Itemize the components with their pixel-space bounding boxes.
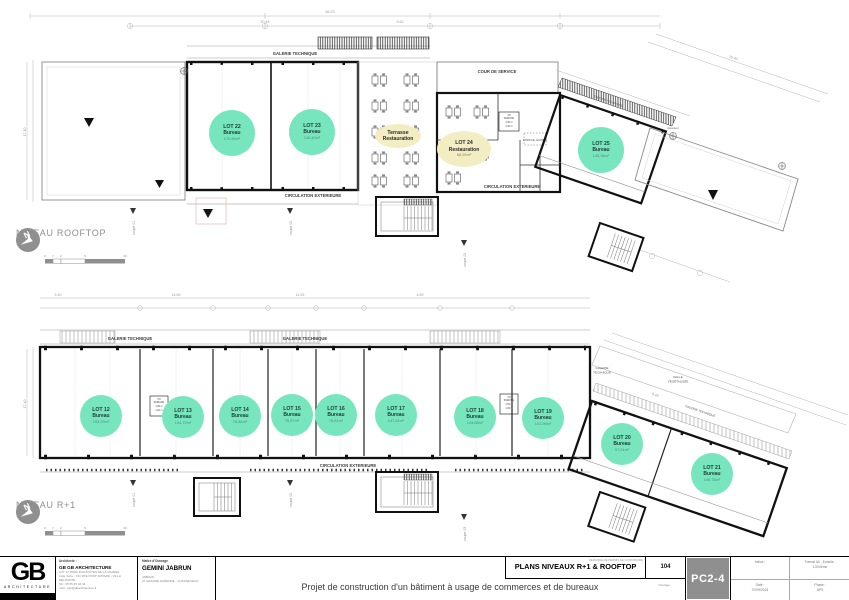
lot-badge-20: LOT 20 Bureau 97,01m² [601, 423, 643, 465]
rooftop-section-markers: coupe 01 coupe 02 coupe 03 [130, 208, 467, 267]
galerie-technique-label: GALERIE TECHNIQUE [283, 336, 328, 341]
scale-tick: 1 [52, 526, 54, 530]
coupe-label: coupe 01 [132, 493, 136, 507]
vh-text: PARKING [504, 117, 515, 120]
lot-area: 68,25m² [457, 153, 471, 158]
drawing-title-cell: DEMANDE DE PERMIS DE CONSTRUIRE PLANS NI… [505, 557, 645, 579]
cour-de-service-label: COUR DE SERVICE [478, 69, 517, 74]
dim-text: 5.40 [55, 293, 62, 297]
architect-label: Architecte : [59, 559, 134, 563]
r1-plan: 5.40 14.89 11.93 4.89 17.40 9.43 GALERIE… [23, 293, 848, 542]
drawing-sheet: 66.23 20.44 9.62 17.10 15.40 GALERIE TEC… [0, 0, 849, 600]
date-cell: Date : 07/09/2023 [731, 579, 789, 600]
meta-cell: Indice : Format A0 - Echelle : 1/200ème … [730, 557, 849, 600]
dalle-label-l1: DALLE [673, 375, 683, 379]
phase-cell: Phase : APS [789, 579, 849, 600]
scale-tick: 2 [60, 254, 62, 258]
lot-area: 170,90m² [224, 137, 240, 141]
rooftop-stair-tower-1 [376, 197, 438, 236]
coupe-label: coupe 02 [289, 493, 293, 507]
circulation-label: CIRCULATION EXTERIEURE [285, 193, 342, 198]
lot-badge-16: LOT 16 Bureau 76,81m² [315, 394, 357, 436]
project-description: Projet de construction d'un bâtiment à u… [215, 582, 685, 592]
vh-text: PARKING [504, 399, 515, 402]
logo-cell: GB ARCHITECTURE [0, 557, 55, 600]
lot-area: 144,72m² [175, 421, 191, 425]
r1-stair-tower-a [194, 478, 240, 516]
lot-area: 151,96m² [535, 422, 551, 426]
pc-code-box: PC2-4 [687, 558, 729, 599]
format-value: 1/200ème [790, 565, 849, 570]
architect-cell: Architecte : GB GB ARCHITECTURE LOT 27 P… [55, 557, 137, 600]
galerie2-label-l2: TECHNIQUE [593, 371, 611, 375]
terrasse-restauration-badge: Terrasse Restauration [375, 124, 421, 148]
lot-area: 97,01m² [615, 448, 629, 452]
lot-area: 145,38m² [593, 154, 609, 158]
lot-badge-22: LOT 22 Bureau 170,90m² [209, 110, 255, 156]
scale-tick: 10 [123, 526, 127, 530]
lot-area: 76,84m² [233, 420, 247, 424]
client-cell: Maître d'Ouvrage GEMINI JABRUN JABRUN 27… [137, 557, 215, 600]
vh-parking-rooftop: VH PARKING 1,50 m 1,00 m [504, 114, 515, 128]
scale-tick: 5 [84, 254, 86, 258]
cour-de-service-area [437, 62, 558, 93]
r1-stair-tower-c [588, 492, 645, 542]
architect-name: GB GB ARCHITECTURE [59, 565, 134, 570]
circulation-label: CIRCULATION EXTERIEURE [484, 184, 541, 189]
indice-label: Indice : [755, 560, 766, 564]
sheet-number-cell: 104 [645, 557, 685, 579]
project-cell [215, 557, 505, 600]
lot-badge-13: LOT 13 Bureau 144,72m² [162, 396, 204, 438]
format-cell: Format A0 - Echelle : 1/200ème [789, 557, 849, 579]
rooftop-level-label: N NIVEAU ROOFTOP [16, 228, 106, 238]
terrasse-label-l2: Restauration [383, 136, 414, 142]
lot-badge-17: LOT 17 Bureau 147,41m² [375, 394, 417, 436]
coupe-label: coupe 03 [463, 253, 467, 267]
rooftop-scale-bar: 0 1 2 5 10 [44, 254, 127, 264]
lot-badge-14: LOT 14 Bureau 76,84m² [219, 395, 261, 437]
r1-section-markers: coupe 01 coupe 02 coupe 03 [130, 480, 467, 541]
dim-text: 20.44 [261, 20, 270, 24]
scale-tick: 0 [44, 526, 46, 530]
vh-text: PARKING [154, 401, 165, 404]
coupe-label: coupe 02 [289, 221, 293, 235]
dim-text: 17.40 [23, 400, 27, 409]
rooftop-right-terrace [635, 128, 798, 231]
plan-linework: 66.23 20.44 9.62 17.10 15.40 GALERIE TEC… [0, 0, 849, 600]
coupe-label: coupe 01 [132, 221, 136, 235]
coupe-label: coupe 03 [463, 527, 467, 541]
dim-text: 66.23 [326, 10, 335, 14]
date-value: 07/09/2023 [731, 588, 789, 593]
client-address-line: 27 GRANDE GARENNE - CHASSENEUIL [142, 580, 211, 584]
logo-text: GB [0, 558, 55, 587]
north-arrow-icon: N [16, 500, 40, 524]
circulation-label: CIRCULATION EXTERIEURE [320, 463, 377, 468]
vh-parking-r1-right: VH PARKING 1,50 m 1,00 m [504, 396, 515, 410]
dim-text: 17.10 [23, 128, 27, 137]
ascenseur-label: Ascenseur [667, 127, 678, 130]
rooftop-left-terrace [42, 62, 185, 200]
lot-badge-25: LOT 25 Bureau 145,38m² [578, 127, 624, 173]
logo-bottom-bar [0, 593, 55, 600]
logo-subtext: ARCHITECTURE [0, 585, 55, 589]
client-label: Maître d'Ouvrage [142, 559, 211, 563]
title-block: GB ARCHITECTURE Architecte : GB GB ARCHI… [0, 556, 849, 600]
rooftop-plan: 66.23 20.44 9.62 17.10 15.40 GALERIE TEC… [23, 10, 828, 282]
scale-tick: 2 [60, 526, 62, 530]
lot-badge-12: LOT 12 Bureau 153,29m² [80, 395, 122, 437]
vh-text: 1,00 m [505, 125, 512, 128]
dim-text: 11.93 [296, 293, 305, 297]
north-arrow-icon: N [16, 228, 40, 252]
dim-text: 9.62 [397, 20, 404, 24]
ouvrage-label: Ouvrage : [645, 583, 685, 587]
r1-stair-tower-b [376, 472, 438, 512]
galerie-technique-label: GALERIE TECHNIQUE [108, 336, 153, 341]
lot-area: 153,29m² [93, 420, 109, 424]
vh-text: 1,50 m [505, 121, 512, 124]
scale-tick: 10 [123, 254, 127, 258]
lot-badge-18: LOT 18 Bureau 144,88m² [454, 396, 496, 438]
vh-text: 1,50 m [505, 403, 512, 406]
lot-badge-19: LOT 19 Bureau 151,96m² [522, 397, 564, 439]
scale-tick: 5 [84, 526, 86, 530]
scale-tick: 0 [44, 254, 46, 258]
lot-area: 147,41m² [388, 419, 404, 423]
drawing-title: PLANS NIVEAUX R+1 & ROOFTOP [506, 562, 645, 571]
r1-scale-bar: 0 1 2 5 10 [44, 526, 127, 536]
lot-area: 76,81m² [329, 419, 343, 423]
dim-text: 9.43 [651, 392, 659, 398]
phase-value: APS [790, 588, 849, 593]
sheet-number: 104 [646, 557, 685, 577]
r1-level-label: N NIVEAU R+1 [16, 500, 76, 510]
indice-cell: Indice : [731, 557, 789, 579]
rooftop-stair-tower-2 [589, 223, 644, 271]
dim-text: 4.89 [417, 293, 424, 297]
dim-text: 15.40 [728, 55, 738, 62]
lot-badge-21: LOT 21 Bureau 149,75m² [691, 453, 733, 495]
lot-badge-23: LOT 23 Bureau 146,40m² [289, 109, 335, 155]
vh-text: 1,50 m [155, 405, 162, 408]
lot-area: 146,40m² [304, 136, 320, 140]
client-name: GEMINI JABRUN [142, 565, 211, 572]
dalle-label-l2: VÉGÉTALISÉE [668, 379, 688, 384]
galerie-technique-label: GALERIE TECHNIQUE [273, 51, 318, 56]
vh-text: 1,00 m [505, 407, 512, 410]
architect-address-line: mail : sgb@gbarchitecture.fr [59, 587, 134, 591]
lot-badge-15: LOT 15 Bureau 76,57m² [271, 394, 313, 436]
lot-area: 144,88m² [467, 421, 483, 425]
scale-tick: 1 [52, 254, 54, 258]
galerie2-label-l1: GALERIE [595, 366, 608, 370]
lot-badge-24: LOT 24 Restauration 68,25m² [437, 131, 491, 167]
dim-text: 14.89 [172, 293, 181, 297]
lot-area: 76,57m² [285, 419, 299, 423]
code-cell: PC2-4 [685, 557, 730, 600]
lot-area: 149,75m² [704, 478, 720, 482]
